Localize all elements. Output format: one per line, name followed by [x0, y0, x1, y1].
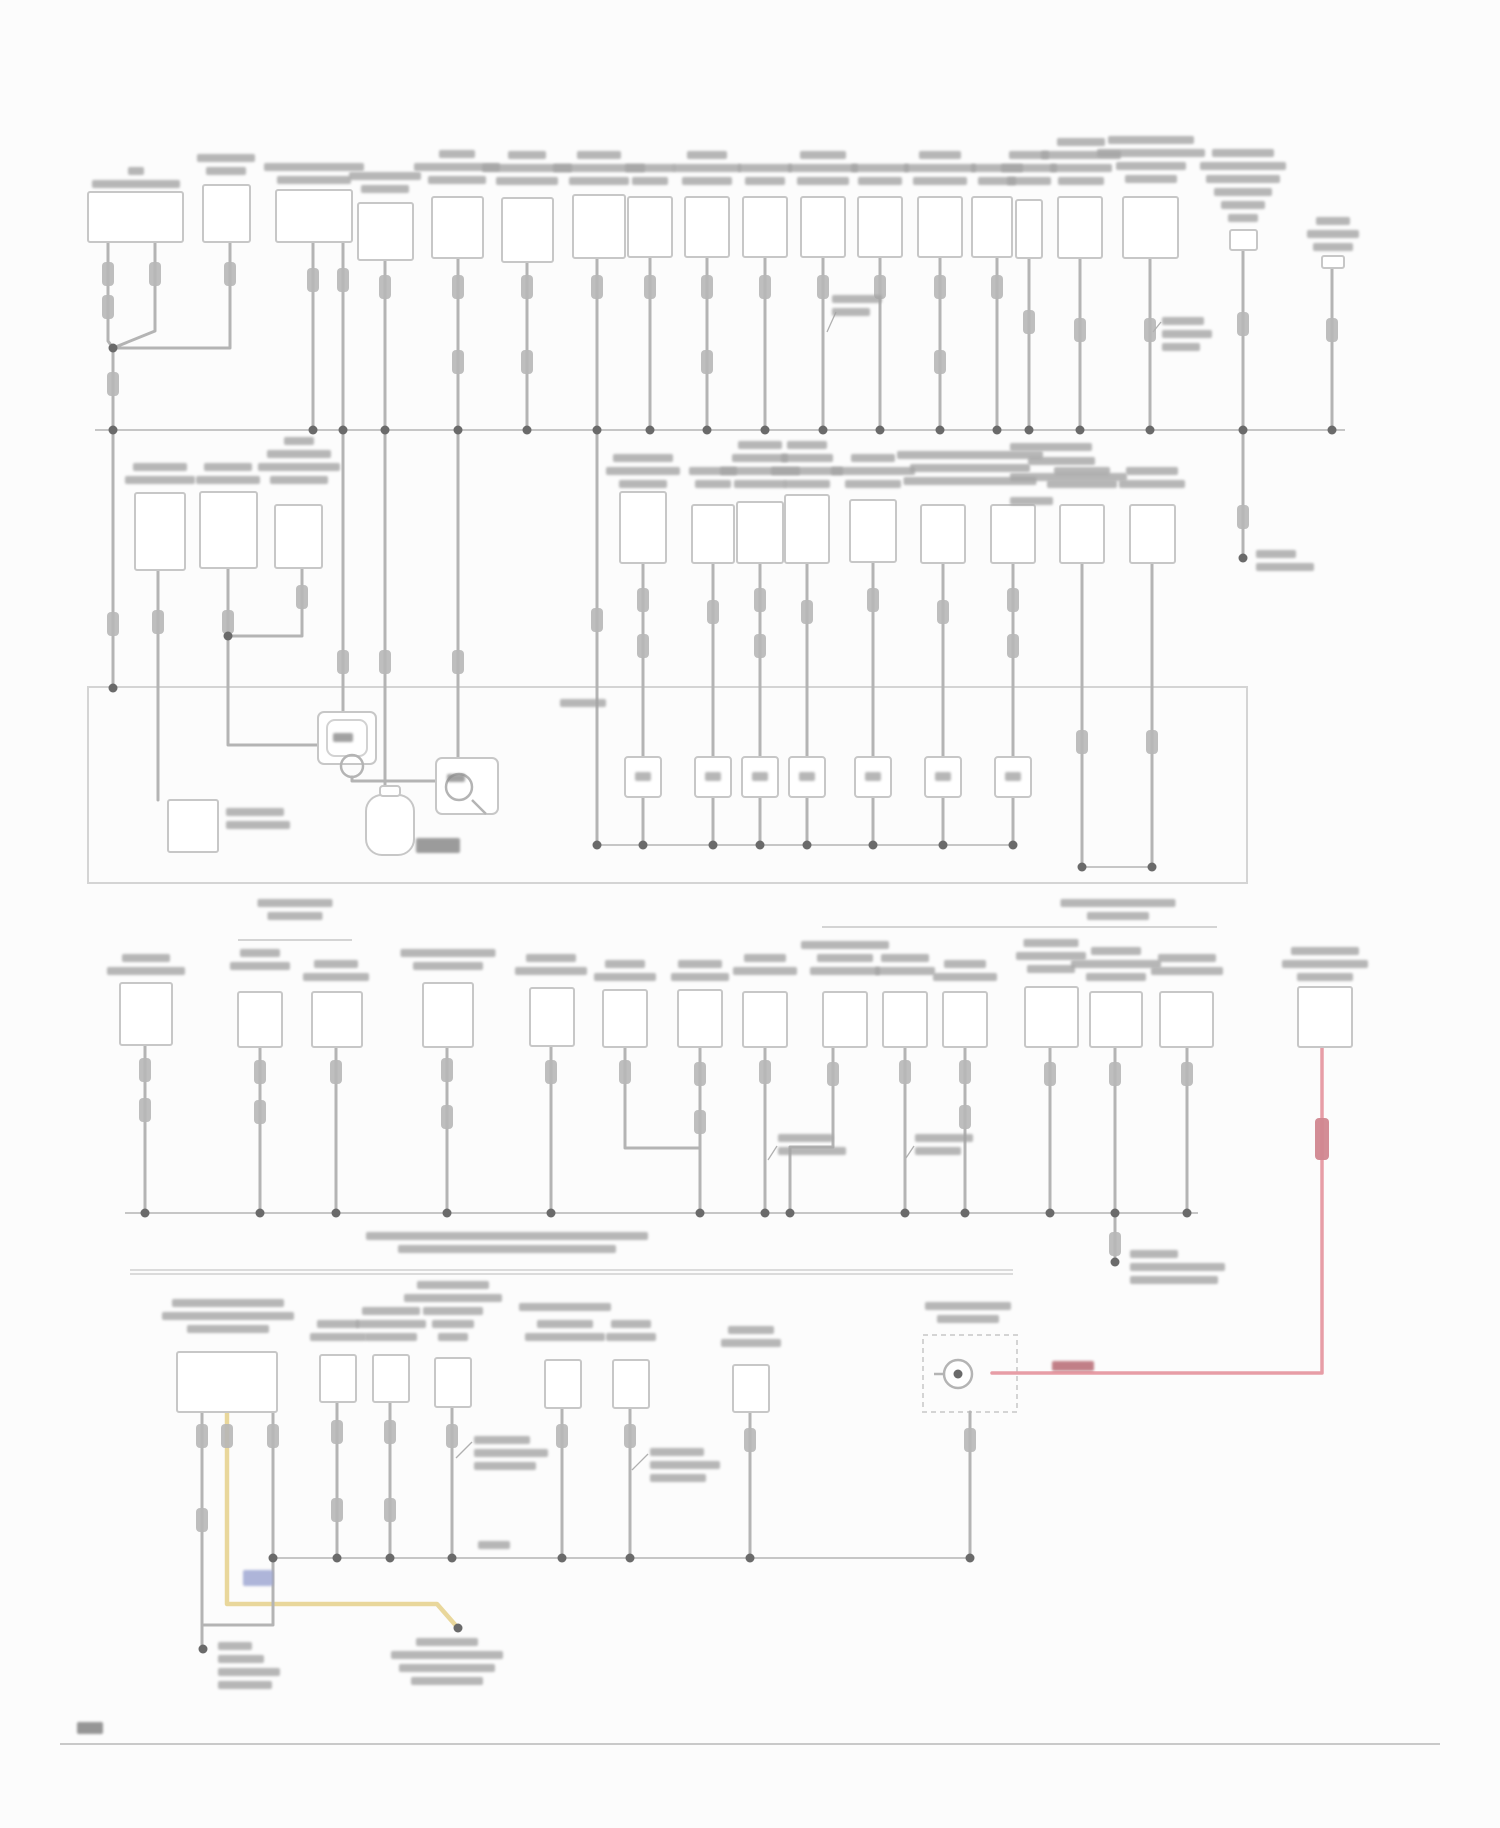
- label-smudge: [525, 1333, 605, 1341]
- connector-tick: [759, 1060, 771, 1084]
- wire-gray: [352, 777, 436, 781]
- connector-tick: [254, 1100, 266, 1124]
- label-smudge: [1071, 960, 1161, 968]
- component-box: [1060, 505, 1104, 563]
- connector-tick: [452, 650, 464, 674]
- label-smudge: [125, 476, 195, 484]
- label-smudge: [349, 172, 421, 180]
- label-smudge: [875, 967, 935, 975]
- label-smudge: [474, 1462, 536, 1470]
- label-smudge: [162, 1312, 294, 1320]
- component-box: [921, 505, 965, 563]
- label-smudge: [1061, 899, 1176, 907]
- junction-dot: [224, 632, 233, 641]
- connector-tick: [446, 1424, 458, 1448]
- junction-dot: [761, 426, 770, 435]
- label-smudge: [519, 1303, 611, 1311]
- label-smudge: [797, 177, 849, 185]
- label-smudge: [1097, 149, 1205, 157]
- component-box: [603, 990, 647, 1047]
- component-box: [733, 1365, 769, 1412]
- label-smudge: [851, 454, 895, 462]
- component-box: [692, 505, 734, 563]
- connector-tick: [196, 1424, 208, 1448]
- connector-tick: [1181, 1062, 1193, 1086]
- inline-connector-label-smudge: [935, 772, 951, 781]
- label-smudge: [537, 1320, 593, 1328]
- wire-yellow: [227, 1412, 458, 1628]
- label-smudge: [1052, 1361, 1094, 1371]
- connector-tick: [441, 1105, 453, 1129]
- label-smudge: [787, 441, 827, 449]
- junction-dot: [786, 1209, 795, 1218]
- component-box: [918, 197, 962, 257]
- connector-tick: [991, 275, 1003, 299]
- relay-label-smudge: [447, 774, 465, 782]
- junction-dot: [646, 426, 655, 435]
- junction-dot: [936, 426, 945, 435]
- connector-tick: [441, 1058, 453, 1082]
- component-box: [1090, 992, 1142, 1047]
- label-smudge: [133, 463, 187, 471]
- label-smudge: [910, 464, 1030, 472]
- junction-dot: [199, 1645, 208, 1654]
- label-smudge: [619, 480, 667, 488]
- connector-tick: [337, 268, 349, 292]
- connector-tick: [964, 1428, 976, 1452]
- wire-gray: [228, 636, 318, 745]
- connector-tick: [934, 275, 946, 299]
- label-smudge: [1016, 952, 1086, 960]
- ground-distribution-diagram: [0, 0, 1500, 1828]
- junction-dot: [1111, 1209, 1120, 1218]
- label-smudge: [650, 1461, 720, 1469]
- label-smudge: [577, 151, 621, 159]
- connector-tick: [644, 275, 656, 299]
- component-box: [200, 492, 257, 568]
- junction-dot: [1239, 426, 1248, 435]
- junction-dot: [1078, 863, 1087, 872]
- label-smudge: [1047, 480, 1117, 488]
- component-box: [530, 988, 574, 1046]
- label-smudge: [1297, 973, 1353, 981]
- component-box: [1025, 987, 1078, 1047]
- connector-tick: [254, 1060, 266, 1084]
- connector-tick: [701, 275, 713, 299]
- component-box: [991, 505, 1035, 563]
- label-smudge: [625, 164, 675, 172]
- label-smudge: [508, 151, 546, 159]
- label-smudge: [268, 912, 323, 920]
- junction-dot: [876, 426, 885, 435]
- label-smudge: [933, 973, 997, 981]
- connector-tick: [707, 600, 719, 624]
- label-smudge: [817, 954, 873, 962]
- label-smudge: [1108, 136, 1194, 144]
- component-box: [135, 493, 185, 570]
- junction-dot: [256, 1209, 265, 1218]
- label-smudge: [1116, 162, 1186, 170]
- label-layer: [92, 136, 1368, 1689]
- label-smudge: [721, 1339, 781, 1347]
- label-smudge: [851, 164, 909, 172]
- label-smudge: [788, 164, 858, 172]
- connector-tick: [759, 275, 771, 299]
- label-smudge: [92, 180, 180, 188]
- component-box: [373, 1355, 409, 1402]
- label-smudge: [745, 177, 785, 185]
- label-smudge: [904, 477, 1037, 485]
- label-smudge: [613, 454, 673, 462]
- connector-tick: [224, 262, 236, 286]
- label-smudge: [416, 1638, 478, 1646]
- label-smudge: [310, 1333, 366, 1341]
- label-smudge: [611, 1320, 651, 1328]
- junction-dot: [819, 426, 828, 435]
- component-box: [423, 983, 473, 1047]
- label-leader-line: [632, 1454, 648, 1470]
- connector-tick: [331, 1498, 343, 1522]
- component-box: [743, 197, 787, 257]
- label-smudge: [218, 1642, 252, 1650]
- component-box: [312, 992, 362, 1047]
- label-smudge: [1316, 217, 1350, 225]
- label-smudge: [1010, 443, 1092, 451]
- label-smudge: [1027, 965, 1075, 973]
- junction-dot: [761, 1209, 770, 1218]
- label-smudge: [1086, 973, 1146, 981]
- label-smudge: [417, 1281, 489, 1289]
- label-smudge: [264, 163, 364, 171]
- label-smudge: [1130, 1276, 1218, 1284]
- junction-dot: [961, 1209, 970, 1218]
- label-leader-line: [906, 1146, 914, 1158]
- connector-tick: [1237, 505, 1249, 529]
- label-smudge: [197, 154, 255, 162]
- junction-dot: [1239, 554, 1248, 563]
- connector-tick: [307, 268, 319, 292]
- junction-dot: [309, 426, 318, 435]
- label-smudge: [1007, 177, 1051, 185]
- label-smudge: [218, 1668, 280, 1676]
- label-smudge: [258, 463, 340, 471]
- label-smudge: [915, 1147, 961, 1155]
- component-box: [435, 1358, 471, 1407]
- junction-dot: [696, 1209, 705, 1218]
- label-smudge: [1058, 177, 1104, 185]
- label-smudge: [858, 177, 902, 185]
- label-smudge: [187, 1325, 269, 1333]
- label-smudge: [650, 1474, 706, 1482]
- junction-dot: [901, 1209, 910, 1218]
- label-smudge: [1162, 343, 1200, 351]
- label-smudge: [632, 177, 668, 185]
- label-smudge: [303, 973, 369, 981]
- label-smudge: [845, 480, 901, 488]
- label-smudge: [744, 954, 786, 962]
- wire-red: [992, 1047, 1322, 1373]
- connector-tick: [1109, 1232, 1121, 1256]
- label-smudge: [738, 441, 782, 449]
- eyelet-center: [954, 1370, 963, 1379]
- label-smudge: [1054, 467, 1110, 475]
- connector-tick: [591, 275, 603, 299]
- label-smudge: [778, 1147, 846, 1155]
- label-smudge: [897, 451, 1043, 459]
- label-smudge: [428, 176, 486, 184]
- connector-tick: [1076, 730, 1088, 754]
- connector-tick: [1146, 730, 1158, 754]
- junction-dot: [443, 1209, 452, 1218]
- component-box: [276, 190, 352, 242]
- label-smudge: [650, 1448, 704, 1456]
- label-smudge: [1228, 214, 1258, 222]
- connector-tick: [221, 1424, 233, 1448]
- junction-dot: [593, 426, 602, 435]
- connector-tick: [331, 1420, 343, 1444]
- label-smudge: [267, 450, 331, 458]
- label-smudge: [1057, 138, 1105, 146]
- label-smudge: [732, 454, 788, 462]
- label-smudge: [206, 167, 246, 175]
- label-smudge: [1024, 939, 1079, 947]
- connector-tick: [102, 262, 114, 286]
- label-smudge: [258, 899, 333, 907]
- wire-gray: [113, 242, 230, 348]
- label-smudge: [474, 1449, 548, 1457]
- wire-gray: [228, 568, 302, 636]
- component-box: [1322, 256, 1344, 268]
- connector-tick: [379, 650, 391, 674]
- connector-tick: [801, 600, 813, 624]
- component-box: [685, 197, 729, 257]
- junction-dot: [626, 1554, 635, 1563]
- wiring-diagram-page: [0, 0, 1500, 1828]
- label-smudge: [366, 1232, 648, 1240]
- component-box: [502, 198, 553, 262]
- component-box: [678, 990, 722, 1047]
- label-smudge: [474, 1436, 530, 1444]
- bell-connector-tab: [380, 786, 400, 796]
- label-smudge: [399, 1664, 495, 1672]
- label-smudge: [362, 1307, 420, 1315]
- junction-dot: [332, 1209, 341, 1218]
- component-box: [1016, 200, 1042, 258]
- label-smudge: [356, 1320, 426, 1328]
- label-smudge: [1125, 175, 1177, 183]
- component-box: [177, 1352, 277, 1412]
- connector-tick: [139, 1058, 151, 1082]
- label-smudge: [122, 954, 170, 962]
- connector-tick: [102, 295, 114, 319]
- connector-tick: [452, 350, 464, 374]
- junction-dot: [703, 426, 712, 435]
- connector-tick: [1007, 588, 1019, 612]
- component-box: [620, 492, 666, 563]
- label-smudge: [778, 1134, 833, 1142]
- label-smudge: [678, 960, 722, 968]
- connector-tick: [149, 262, 161, 286]
- label-smudge: [413, 962, 483, 970]
- junction-dot: [869, 841, 878, 850]
- connector-tick: [624, 1424, 636, 1448]
- junction-dot: [593, 841, 602, 850]
- label-smudge: [832, 308, 870, 316]
- component-box: [785, 495, 829, 563]
- connector-tick: [545, 1060, 557, 1084]
- label-smudge: [1313, 243, 1353, 251]
- connector-tick: [619, 1060, 631, 1084]
- label-smudge: [832, 295, 882, 303]
- label-smudge: [1282, 960, 1368, 968]
- connector-tick: [152, 610, 164, 634]
- junction-dot: [966, 1554, 975, 1563]
- connector-tick: [379, 275, 391, 299]
- junction-dot: [746, 1554, 755, 1563]
- junction-dot: [1183, 1209, 1192, 1218]
- junction-dot: [523, 426, 532, 435]
- component-box: [737, 502, 783, 563]
- connector-tick: [867, 588, 879, 612]
- junction-dot: [756, 841, 765, 850]
- label-smudge: [317, 1320, 359, 1328]
- label-smudge: [243, 1570, 273, 1586]
- wire-gray: [625, 1047, 700, 1148]
- component-box: [972, 197, 1012, 257]
- label-smudge: [606, 467, 680, 475]
- junction-dot: [386, 1554, 395, 1563]
- component-box: [1160, 992, 1213, 1047]
- label-smudge: [438, 1333, 468, 1341]
- label-leader-line: [456, 1442, 472, 1458]
- junction-dot: [339, 426, 348, 435]
- connector-tick: [754, 588, 766, 612]
- junction-dot: [939, 841, 948, 850]
- component-box: [850, 500, 896, 562]
- component-box: [801, 197, 845, 257]
- component-box: [573, 195, 625, 258]
- component-box: [743, 992, 787, 1047]
- connector-tick: [817, 275, 829, 299]
- junction-dot: [333, 1554, 342, 1563]
- label-smudge: [411, 1677, 483, 1685]
- connector-tick: [267, 1424, 279, 1448]
- label-smudge: [361, 185, 409, 193]
- component-box: [1298, 987, 1352, 1047]
- junction-dot: [109, 684, 118, 693]
- label-smudge: [365, 1333, 417, 1341]
- junction-dot: [109, 426, 118, 435]
- label-smudge: [1010, 497, 1053, 505]
- connector-tick: [296, 585, 308, 609]
- label-smudge: [1162, 317, 1204, 325]
- label-smudge: [937, 1315, 999, 1323]
- label-smudge: [810, 967, 880, 975]
- junction-dot: [547, 1209, 556, 1218]
- label-smudge: [204, 463, 252, 471]
- label-smudge: [671, 973, 729, 981]
- label-smudge: [196, 476, 260, 484]
- junction-dot: [109, 344, 118, 353]
- label-smudge: [687, 151, 727, 159]
- component-box: [545, 1360, 581, 1408]
- junction-dot: [141, 1209, 150, 1218]
- connector-tick: [959, 1105, 971, 1129]
- bell-label-smudge: [416, 838, 460, 853]
- label-smudge: [944, 960, 986, 968]
- component-box: [358, 203, 413, 260]
- label-smudge: [1200, 162, 1286, 170]
- inline-connector-label-smudge: [865, 772, 881, 781]
- connector-tick: [591, 608, 603, 632]
- connector-tick: [521, 350, 533, 374]
- label-smudge: [913, 177, 967, 185]
- connector-tick: [959, 1060, 971, 1084]
- label-smudge: [240, 949, 280, 957]
- label-smudge: [1256, 563, 1314, 571]
- component-box: [943, 992, 987, 1047]
- label-smudge: [226, 821, 290, 829]
- label-smudge: [781, 454, 833, 462]
- connector-tick: [827, 1062, 839, 1086]
- label-smudge: [904, 164, 976, 172]
- label-smudge: [128, 167, 144, 175]
- splice-enclosure-box: [88, 687, 1247, 883]
- relay-label-smudge: [333, 733, 353, 742]
- label-smudge: [230, 962, 290, 970]
- inline-connector-label-smudge: [799, 772, 815, 781]
- junction-dot: [1146, 426, 1155, 435]
- component-box: [275, 505, 322, 568]
- label-smudge: [218, 1681, 272, 1689]
- junction-dot: [993, 426, 1002, 435]
- connector-tick: [1237, 312, 1249, 336]
- label-smudge: [800, 151, 846, 159]
- junction-dot: [639, 841, 648, 850]
- component-box: [432, 197, 483, 258]
- label-smudge: [226, 808, 284, 816]
- footer-layer: [60, 1722, 1440, 1744]
- label-smudge: [423, 1307, 483, 1315]
- label-smudge: [915, 1134, 973, 1142]
- component-box: [120, 983, 172, 1045]
- label-smudge: [738, 164, 792, 172]
- label-smudge: [314, 960, 358, 968]
- label-smudge: [439, 150, 475, 158]
- label-smudge: [526, 954, 576, 962]
- connector-tick: [384, 1420, 396, 1444]
- connector-tick: [694, 1062, 706, 1086]
- label-smudge: [277, 176, 351, 184]
- connector-tick: [452, 275, 464, 299]
- label-smudge: [1212, 149, 1274, 157]
- label-smudge: [391, 1651, 503, 1659]
- component-box: [1058, 197, 1102, 258]
- connector-tick: [1074, 318, 1086, 342]
- connector-tick: [899, 1060, 911, 1084]
- label-smudge: [728, 1326, 774, 1334]
- junction-dot: [1009, 841, 1018, 850]
- connector-tick: [1007, 634, 1019, 658]
- label-smudge: [784, 480, 830, 488]
- junction-dot: [1148, 863, 1157, 872]
- junction-dot: [803, 841, 812, 850]
- inline-connector-label-smudge: [1005, 772, 1021, 781]
- junction-dot: [558, 1554, 567, 1563]
- label-smudge: [515, 967, 587, 975]
- label-smudge: [605, 960, 645, 968]
- label-smudge: [172, 1299, 284, 1307]
